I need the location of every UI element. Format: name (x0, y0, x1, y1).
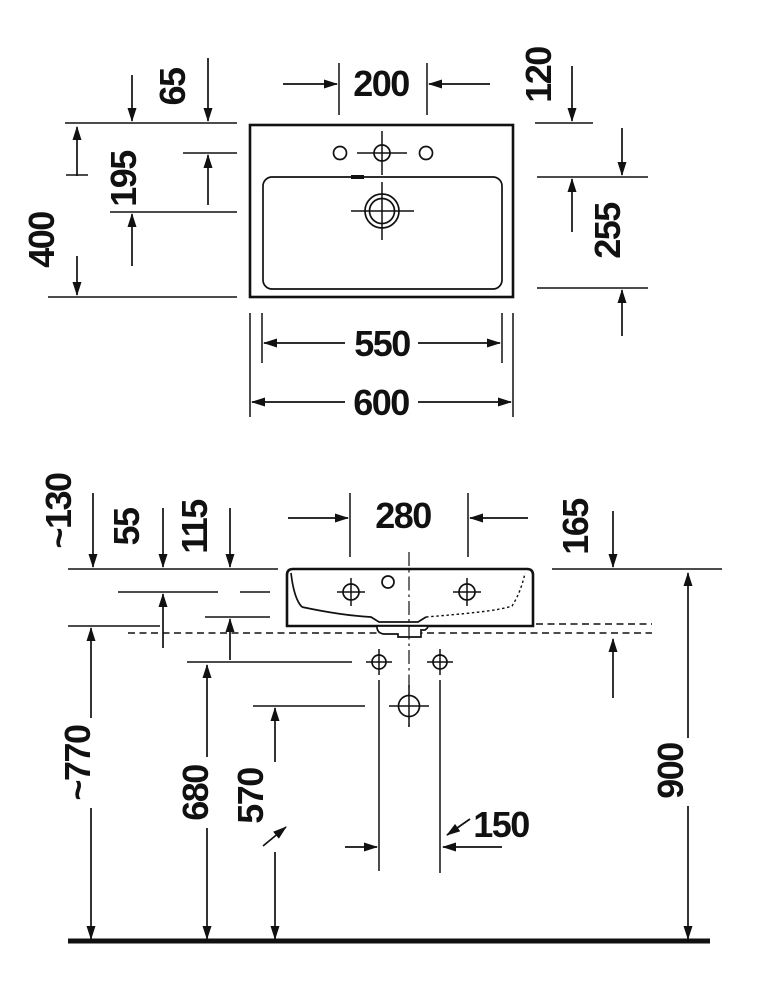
dim-label-anchor-height: 680 (175, 765, 216, 821)
dim-label-fixing-spacing: 280 (375, 495, 431, 536)
leader-arrow (263, 827, 286, 846)
dim-label-rim-depth: 120 (518, 47, 559, 103)
dim-label-siphon-height: 570 (230, 768, 271, 824)
dim-label-bowl-depth: 255 (587, 202, 628, 259)
technical-drawing-page: 400 195 65 200 120 255 550 600 (0, 0, 760, 998)
tap-hole-left (334, 147, 347, 160)
dim-label-overall-depth: 400 (21, 212, 62, 268)
dim-label-fixing-offset: 55 (106, 507, 147, 546)
dim-label-drain-offset: 195 (103, 150, 144, 207)
dim-label-apron-height: ~130 (38, 473, 79, 549)
dim-label-anchor-spacing: 150 (473, 804, 529, 845)
front-elevation-view: ~130 55 115 280 165 ~770 680 570 150 900 (38, 473, 722, 941)
dim-label-overall-width: 600 (353, 382, 409, 423)
dim-label-underside-height: ~770 (57, 725, 98, 801)
dim-label-rim-height: 900 (650, 743, 691, 799)
tap-hole-right (420, 147, 433, 160)
dim-label-taphole-offset: 65 (152, 67, 193, 106)
drain-outlet-fitting (377, 626, 428, 637)
leader-arrow (447, 819, 470, 835)
dim-label-total-height: 165 (555, 498, 596, 555)
basin-front-profile (287, 569, 533, 626)
drawing-canvas: 400 195 65 200 120 255 550 600 (0, 0, 760, 998)
plan-view: 400 195 65 200 120 255 550 600 (21, 47, 648, 423)
dim-label-taphole-spacing: 200 (353, 63, 409, 104)
overflow-hole (382, 576, 394, 588)
dim-label-bowl-inner-depth: 115 (174, 499, 215, 554)
dim-label-inner-width: 550 (354, 323, 410, 364)
